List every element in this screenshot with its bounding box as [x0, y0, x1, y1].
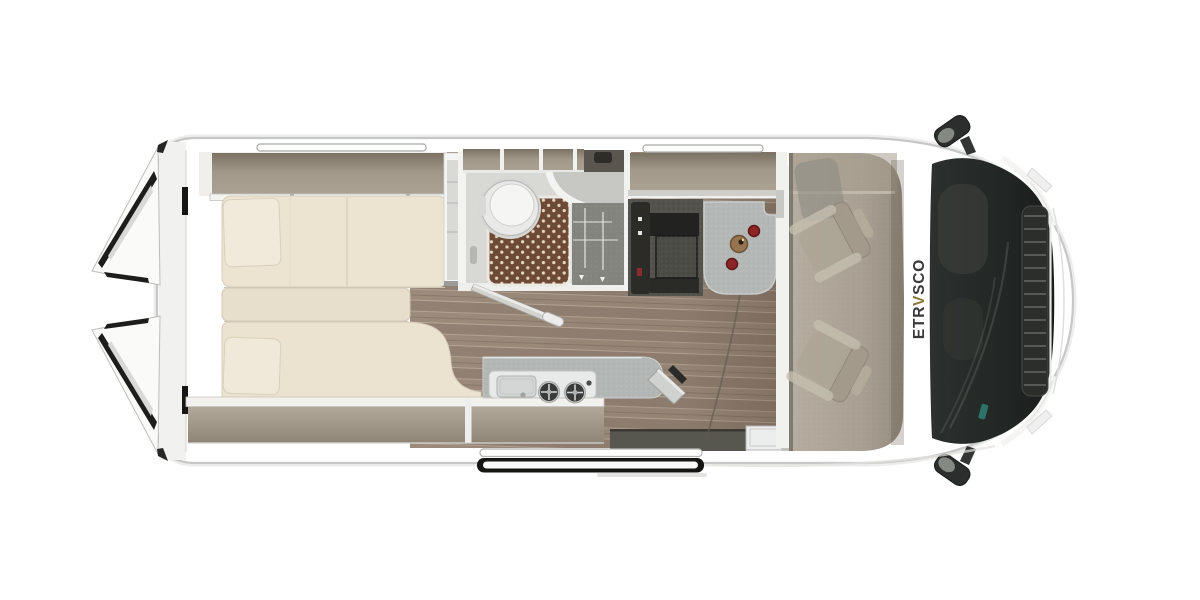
svg-text:ETRVSCO: ETRVSCO — [911, 259, 928, 339]
